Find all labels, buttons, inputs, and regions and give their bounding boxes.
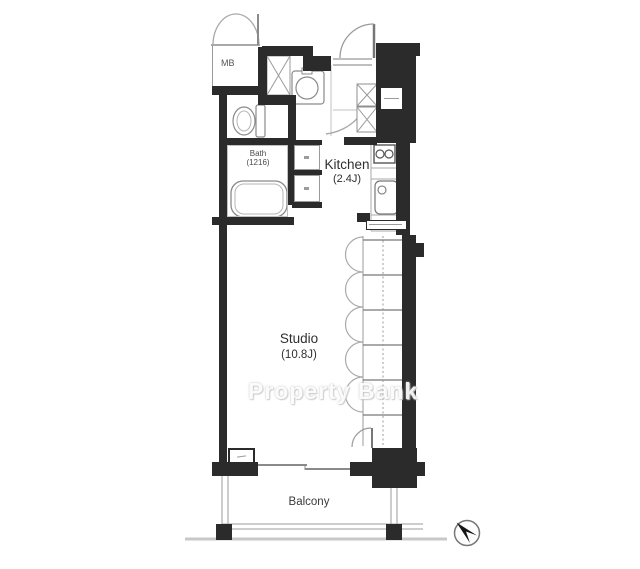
wall-segment xyxy=(303,56,331,71)
washbasin-bowl xyxy=(296,77,318,99)
kitchen-label: Kitchen (2.4J) xyxy=(322,157,372,185)
balcony-label: Balcony xyxy=(286,496,332,509)
washer-space-mark xyxy=(304,156,309,159)
compass-icon xyxy=(455,521,480,546)
mb-left-edge xyxy=(212,45,213,86)
balcony-post xyxy=(216,524,232,540)
mb-door-arc-left xyxy=(213,14,236,45)
floor-plan: MB Bath (1216) Kitchen (2.4J) Studio (10… xyxy=(0,0,640,569)
ac-sleeve-box xyxy=(228,448,255,464)
wall-segment xyxy=(262,46,313,56)
wall-segment xyxy=(212,462,258,476)
bath-size: (1216) xyxy=(230,158,286,167)
wall-segment xyxy=(344,137,377,145)
studio-name: Studio xyxy=(280,331,318,346)
wall-segment xyxy=(258,95,296,105)
kitchen-size: (2.4J) xyxy=(322,173,372,186)
studio-size: (10.8J) xyxy=(270,349,328,362)
mb-door-arc-right xyxy=(236,14,259,45)
wall-segment xyxy=(226,138,290,145)
bath-label: Bath (1216) xyxy=(230,149,286,167)
fridge-space-mark xyxy=(304,187,309,190)
bath-name: Bath xyxy=(250,149,266,158)
wall-segment xyxy=(212,217,294,225)
kitchen-name: Kitchen xyxy=(324,157,369,172)
studio-label: Studio (10.8J) xyxy=(270,331,328,362)
wall-segment xyxy=(350,462,372,476)
shoe-cabinet xyxy=(381,88,402,109)
meter-box-label: MB xyxy=(221,58,235,68)
plan-linework xyxy=(0,0,640,569)
wall-segment xyxy=(402,235,416,449)
kitchen-sink xyxy=(375,181,398,214)
balcony-post xyxy=(386,524,402,540)
wall-segment xyxy=(372,448,417,488)
counter-pass-bar xyxy=(366,220,407,230)
closet-end-door-arc xyxy=(352,428,371,447)
watermark: Property Bank xyxy=(248,378,418,405)
entrance-door-arc xyxy=(340,24,374,58)
wall-segment xyxy=(292,202,322,208)
wall-segment xyxy=(402,243,424,257)
wall-segment xyxy=(417,462,425,476)
toilet-tank xyxy=(256,105,265,137)
